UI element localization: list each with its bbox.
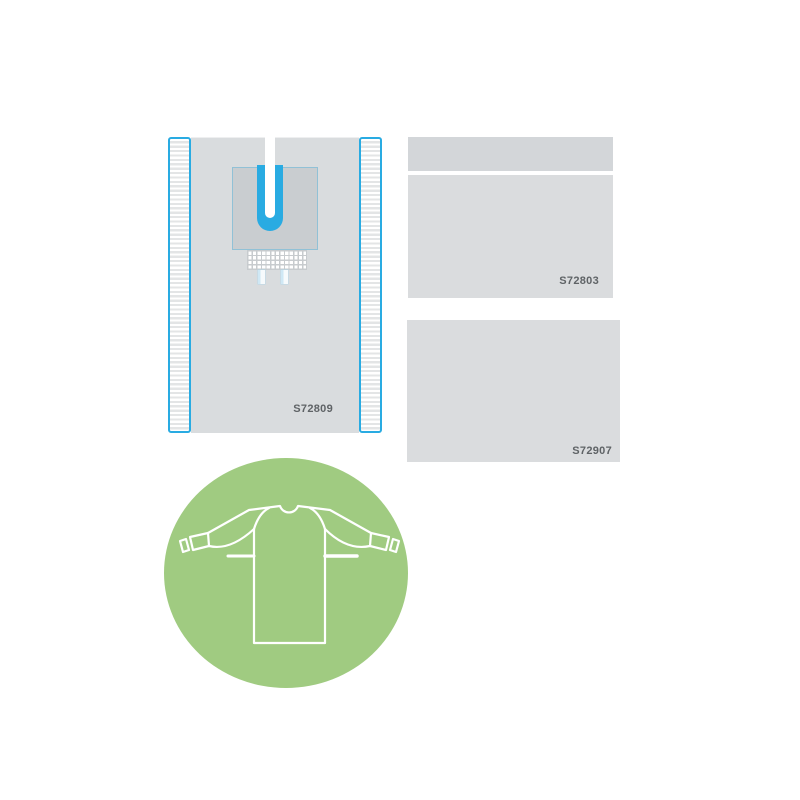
product-code-sheet-top: S72803 (559, 276, 599, 287)
adhesive-fringe-strip-left (168, 137, 191, 433)
adhesive-fringe-strip-right (359, 137, 382, 433)
product-sheet-bottom: S72907 (407, 320, 620, 462)
page: { "products": { "drape": { "code": "S728… (0, 0, 800, 800)
sheet-top-fold-strip (408, 137, 613, 171)
drape-panel: S72809 (191, 137, 359, 433)
drape-tab-left (258, 270, 265, 284)
product-drape: S72809 (168, 137, 382, 433)
gown-badge (160, 456, 412, 692)
mesh-grid-pad (247, 250, 307, 270)
surgical-gown-icon (160, 456, 412, 692)
product-sheet-top: S72803 (408, 175, 613, 298)
drape-slit (265, 137, 275, 218)
product-code-drape: S72809 (293, 404, 333, 415)
product-code-sheet-bottom: S72907 (572, 446, 612, 457)
drape-tab-right (281, 270, 288, 284)
